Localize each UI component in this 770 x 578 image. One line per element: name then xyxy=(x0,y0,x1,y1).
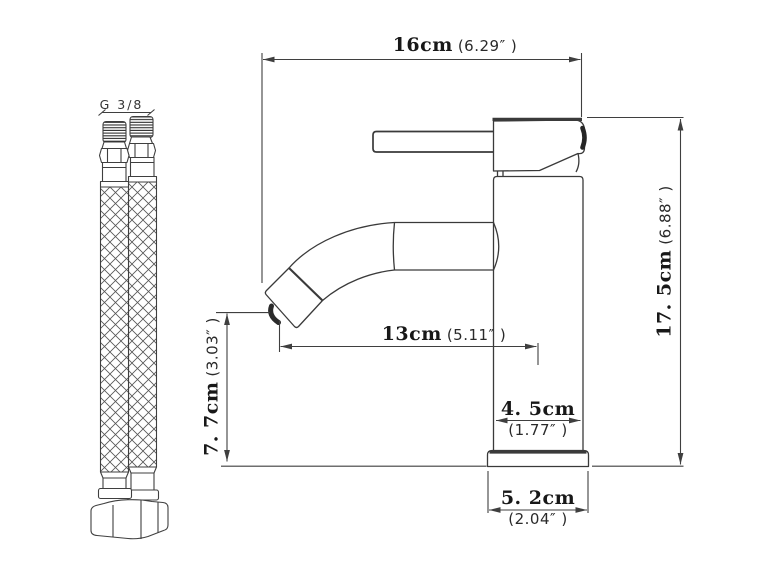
dim-body-diameter-cm: 4. 5cm xyxy=(501,398,575,420)
hose-right-bottom-ferrule xyxy=(129,467,157,473)
hose-right-collar xyxy=(131,158,155,177)
faucet-handle-cap-mark xyxy=(583,128,585,148)
dim-spout-reach-label: 13cm(5.11″ ) xyxy=(334,325,554,344)
hose-left-neck xyxy=(102,142,127,149)
faucet-dimension-diagram: G 3/8 16cm(6.29″ ) 13cm(5.11″ ) 17. 5cm(… xyxy=(0,0,770,578)
hose-right-braid xyxy=(129,182,157,467)
dim-body-diameter-label: 4. 5cm (1.77″ ) xyxy=(483,400,593,438)
hose-right-hexnut xyxy=(128,144,156,158)
dim-spout-to-back-inch: (6.29″ ) xyxy=(458,37,517,55)
dim-base-diameter-inch: (2.04″ ) xyxy=(483,512,593,527)
faucet-cartridge-joint xyxy=(498,171,504,177)
faucet-spout xyxy=(265,223,498,328)
hose-left xyxy=(99,122,132,499)
dim-total-height-inch: (6.88″ ) xyxy=(657,185,675,244)
hose-thread-label: G 3/8 xyxy=(94,96,149,112)
spout-joint-line xyxy=(393,223,394,271)
dim-body-diameter-inch: (1.77″ ) xyxy=(483,423,593,438)
hose-right-bottom-collar xyxy=(131,473,154,492)
hose-left-hexnut xyxy=(100,149,130,163)
hose-bottom-nut xyxy=(91,500,168,539)
supply-hoses-drawing xyxy=(91,117,168,540)
spout-inner-curve xyxy=(323,270,395,301)
hose-left-flange xyxy=(99,489,132,499)
hose-thread-size-text: G 3/8 xyxy=(100,97,144,112)
dim-spout-to-back-cm: 16cm xyxy=(393,34,453,56)
dimension-lines xyxy=(99,53,684,513)
hose-right-flange xyxy=(128,490,159,500)
dim-base-diameter-cm: 5. 2cm xyxy=(501,487,575,509)
dim-spout-reach-inch: (5.11″ ) xyxy=(447,326,506,344)
hose-left-collar xyxy=(103,163,127,182)
dim-total-height-cm: 17. 5cm xyxy=(654,250,676,338)
dim-spout-height-inch: (3.03″ ) xyxy=(204,317,222,376)
hose-left-thread xyxy=(103,122,126,143)
faucet-handle-lever xyxy=(373,132,494,153)
hose-right-ferrule xyxy=(129,177,157,183)
dim-base-diameter-label: 5. 2cm (2.04″ ) xyxy=(483,489,593,527)
hose-right xyxy=(128,117,159,501)
dim-spout-reach-cm: 13cm xyxy=(382,323,442,345)
hose-right-thread xyxy=(130,117,153,138)
dim-spout-height-label: 7. 7cm(3.03″ ) xyxy=(203,302,222,472)
dim-total-height-label: 17. 5cm(6.88″ ) xyxy=(656,162,675,362)
faucet-handle-head xyxy=(494,120,585,171)
dim-spout-height-cm: 7. 7cm xyxy=(201,382,223,456)
hose-left-bottom-ferrule xyxy=(101,472,129,478)
spout-aerator-mark xyxy=(271,306,279,323)
faucet-handle-front-arc xyxy=(576,154,579,173)
hose-right-neck xyxy=(130,137,153,144)
hose-left-braid xyxy=(101,187,129,472)
spout-outer-curve xyxy=(289,223,395,269)
hose-left-ferrule xyxy=(101,182,129,188)
dim-spout-to-back-label: 16cm(6.29″ ) xyxy=(345,36,565,55)
